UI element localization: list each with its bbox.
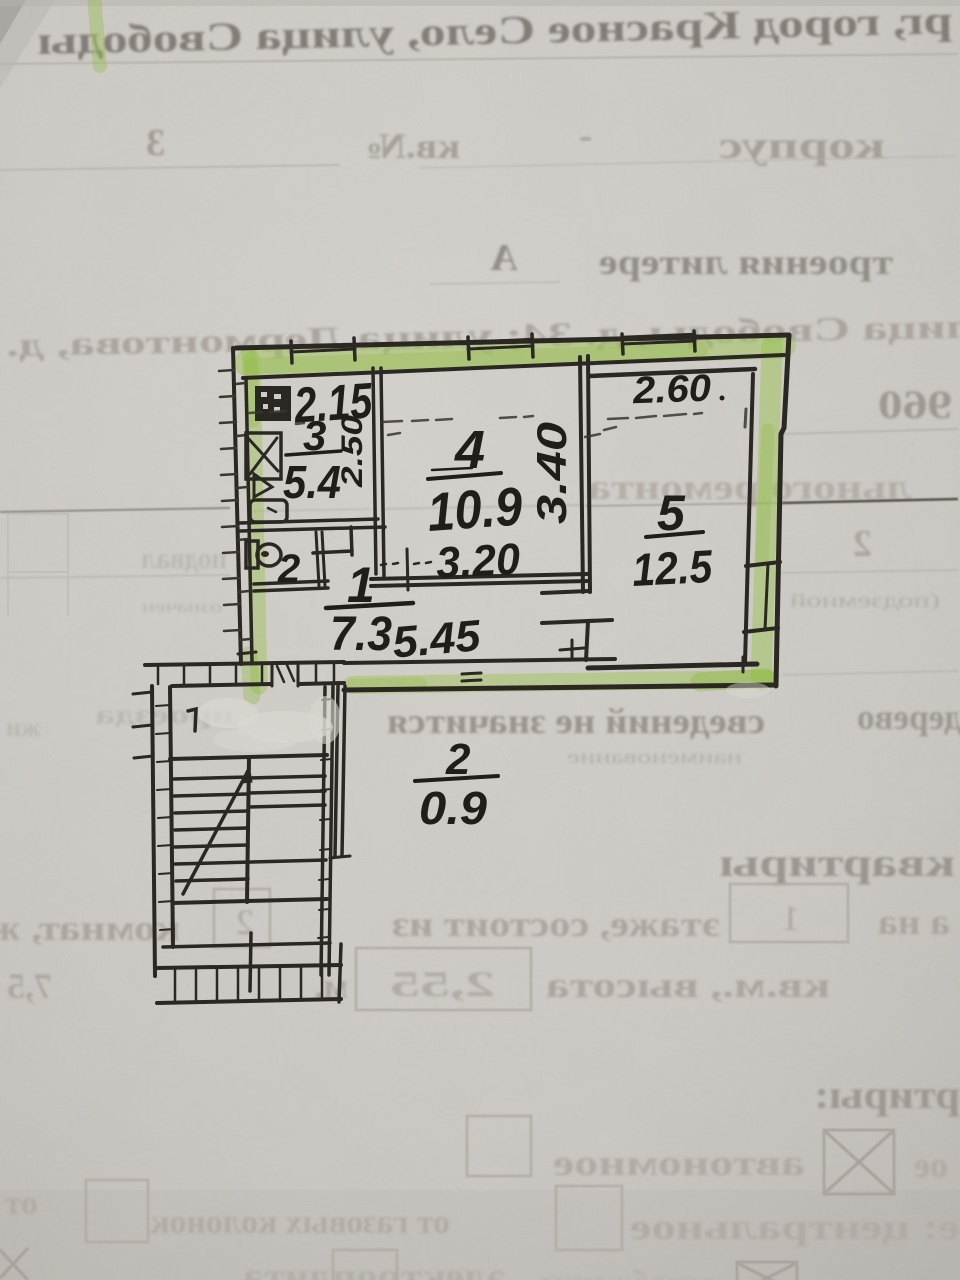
svg-text:-: - <box>579 115 592 157</box>
svg-text:3.20: 3.20 <box>435 535 522 588</box>
svg-text:подвал: подвал <box>141 542 227 575</box>
svg-text:а на: а на <box>878 902 950 942</box>
svg-text:кв.м., высота: кв.м., высота <box>546 965 830 1005</box>
svg-text:5.4: 5.4 <box>283 456 341 508</box>
svg-text:(подземной: (подземной <box>790 590 940 612</box>
svg-text:3.40: 3.40 <box>528 422 575 524</box>
svg-text:2.60: 2.60 <box>631 368 711 413</box>
svg-text:жи: жи <box>6 713 40 742</box>
svg-text:е: центральное: е: центральное <box>630 1207 960 1247</box>
svg-text:ртиры:: ртиры: <box>814 1072 960 1117</box>
svg-text:5.45: 5.45 <box>390 611 482 668</box>
svg-text:0.9: 0.9 <box>419 782 487 834</box>
svg-text:2: 2 <box>853 523 872 565</box>
svg-text:квартиры: квартиры <box>719 840 955 885</box>
svg-text:2: 2 <box>277 547 300 591</box>
svg-text:10.9: 10.9 <box>425 476 524 542</box>
svg-text:от: от <box>4 1185 38 1222</box>
svg-text:А: А <box>490 237 518 279</box>
svg-text:автономное: автономное <box>553 1143 805 1183</box>
svg-text:2,55: 2,55 <box>390 964 495 1004</box>
svg-text:1: 1 <box>782 898 800 938</box>
svg-text:электроплита: электроплита <box>243 1256 505 1280</box>
svg-text:троения литере: троения литере <box>599 242 893 282</box>
svg-text:3: 3 <box>146 122 165 164</box>
svg-text:от газовых колонок: от газовых колонок <box>150 1204 450 1241</box>
svg-text:наименование: наименование <box>567 747 742 768</box>
svg-text:7.3: 7.3 <box>330 608 392 661</box>
svg-text:4: 4 <box>454 420 485 480</box>
svg-text:960: 960 <box>878 382 952 427</box>
svg-text:этаже, состоит из: этаже, состоит из <box>392 904 720 944</box>
svg-text:7,5: 7,5 <box>7 966 52 1006</box>
svg-text:ое: ое <box>914 1145 948 1185</box>
svg-text:12.5: 12.5 <box>631 540 715 596</box>
svg-text:дерево: дерево <box>857 697 960 737</box>
svg-text:оснабжение: оснабжение <box>538 1263 718 1280</box>
svg-text:означен: означен <box>142 597 222 616</box>
svg-text:2.50: 2.50 <box>336 415 369 489</box>
svg-text:кв.№: кв.№ <box>366 126 460 166</box>
svg-text:сведений не значится: сведений не значится <box>387 701 765 741</box>
